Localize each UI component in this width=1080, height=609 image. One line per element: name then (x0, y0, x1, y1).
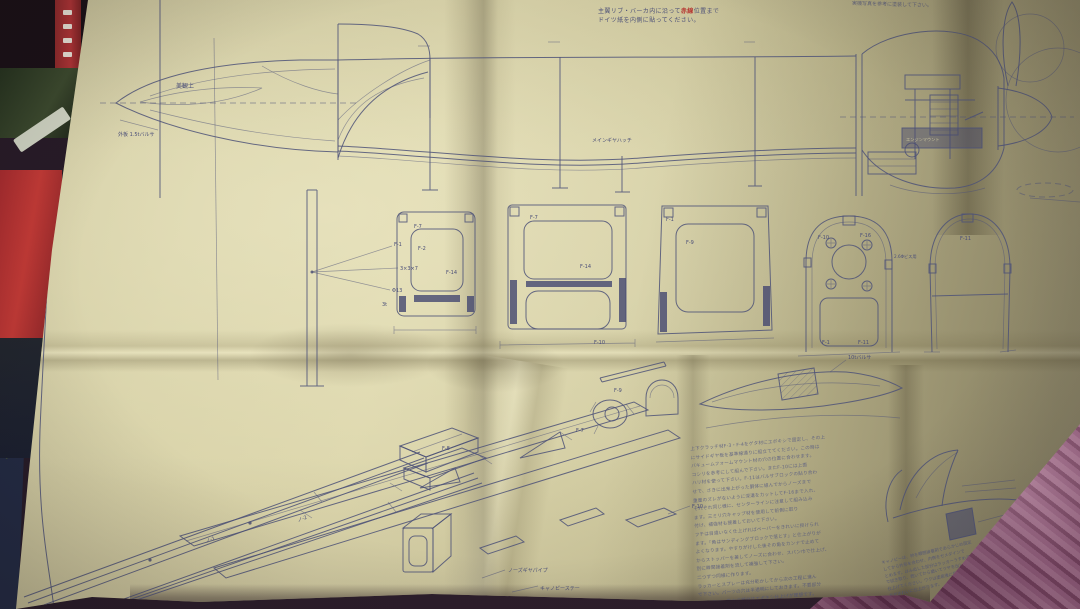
engine-box-label: エンジンマウント (906, 136, 940, 143)
fin-part (700, 360, 902, 428)
nose-box (403, 514, 451, 572)
canopy-stay-label: キャノピーステー (540, 586, 580, 592)
fuselage-label: メインギヤハッチ (592, 138, 632, 144)
cowl-ring-cylinder (590, 400, 634, 434)
gear-pipe-label: ノーズギヤパイプ (508, 567, 548, 574)
former-b-label-1: F-7 (530, 215, 538, 221)
firewall-former (798, 216, 900, 356)
fuselage-side-rails (24, 452, 482, 609)
blueprint-drawing: 美観上 外板 1.5tバルサ F-1 3×3×7 Φ13 3t メインギヤハッチ… (0, 0, 1080, 609)
engine-detail (868, 75, 985, 194)
spine-lettering (63, 52, 72, 57)
plan-sheet-paper: 美観上 外板 1.5tバルサ F-1 3×3×7 Φ13 3t メインギヤハッチ… (0, 0, 1080, 609)
former-a (394, 212, 476, 334)
arch-former-label: F-11 (960, 236, 971, 242)
former-b-label-2: F-14 (580, 264, 591, 270)
callout-dim3: 3t (382, 302, 387, 308)
former-c-label-1: F-9 (686, 240, 694, 246)
crutch-label-a: F-8 (442, 446, 450, 452)
former-c-label-2: F-1 (666, 217, 674, 223)
fuselage-top-view (338, 42, 856, 192)
engine-cowl-and-spinner (840, 2, 1080, 202)
former-a-label-2: F-14 (446, 270, 457, 276)
spine-lettering (63, 10, 72, 15)
fin-note-label: 10tバルサ (848, 355, 871, 361)
top-center-note: 主翼リブ・バーカ内に沿って赤線位置まで ドイツ紙を内側に貼ってください。 (598, 7, 778, 25)
top-note-line1-pre: 主翼リブ・バーカ内に沿って (598, 8, 681, 15)
former-b (500, 205, 635, 349)
callout-dim1: 3×3×7 (400, 266, 418, 272)
top-note-line1-post: 位置まで (694, 8, 720, 15)
former-b-label-3: F-10 (594, 340, 605, 346)
firewall-label-4: F-11 (858, 340, 869, 346)
arch-former (924, 214, 1016, 352)
former-c (656, 206, 774, 342)
firewall-label-2: F-16 (860, 233, 871, 239)
former-a-label-1: F-7 (414, 224, 422, 230)
callout-f1: F-1 (394, 242, 402, 248)
firewall-label-1: F-10 (818, 235, 829, 241)
crutch-label-d: F-7 (576, 428, 584, 434)
spine-lettering (63, 24, 72, 29)
nose-note-label: 外板 1.5tバルサ (118, 131, 155, 138)
rail-label-b: ノ-2 (297, 515, 308, 524)
canopy-block (300, 24, 430, 386)
top-note-red-mark: 赤線 (681, 8, 694, 15)
former-a-label-3: F-2 (418, 246, 426, 252)
spine-lettering (63, 38, 72, 43)
surface-label: 美観上 (176, 82, 194, 90)
mount-note-label: 2.6Φビス用 (894, 253, 917, 260)
isometric-crutch-assembly (180, 362, 690, 578)
firewall-label-3: F-1 (822, 340, 830, 346)
tail-cone-top-view (100, 60, 360, 152)
photo-of-model-plan: 美観上 外板 1.5tバルサ F-1 3×3×7 Φ13 3t メインギヤハッチ… (0, 0, 1080, 609)
instructions-text-block: 上下クラッチ材F-3・F-4をゲタ材にエポキシで固定し、その上 にサイドギヤ板を… (690, 428, 912, 609)
top-note-line2: ドイツ紙を内側に貼ってください。 (598, 16, 778, 25)
standing-former (646, 380, 678, 416)
callout-dim2: Φ13 (392, 288, 402, 294)
crutch-label-b: F-9 (614, 388, 622, 394)
